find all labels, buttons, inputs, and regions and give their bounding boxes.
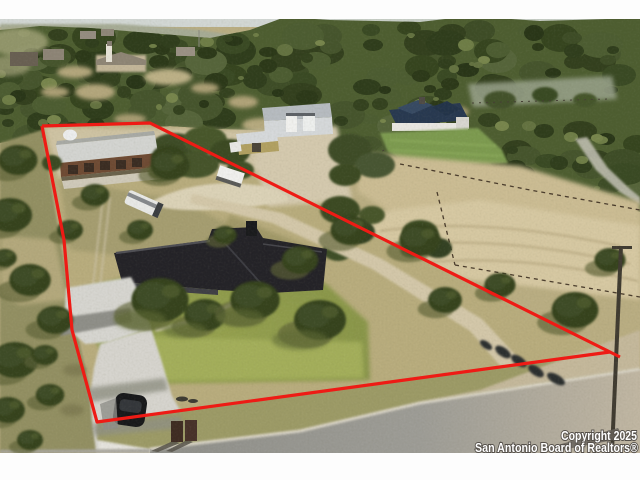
- svg-text:San Antonio Board of Realtors®: San Antonio Board of Realtors®: [475, 441, 639, 455]
